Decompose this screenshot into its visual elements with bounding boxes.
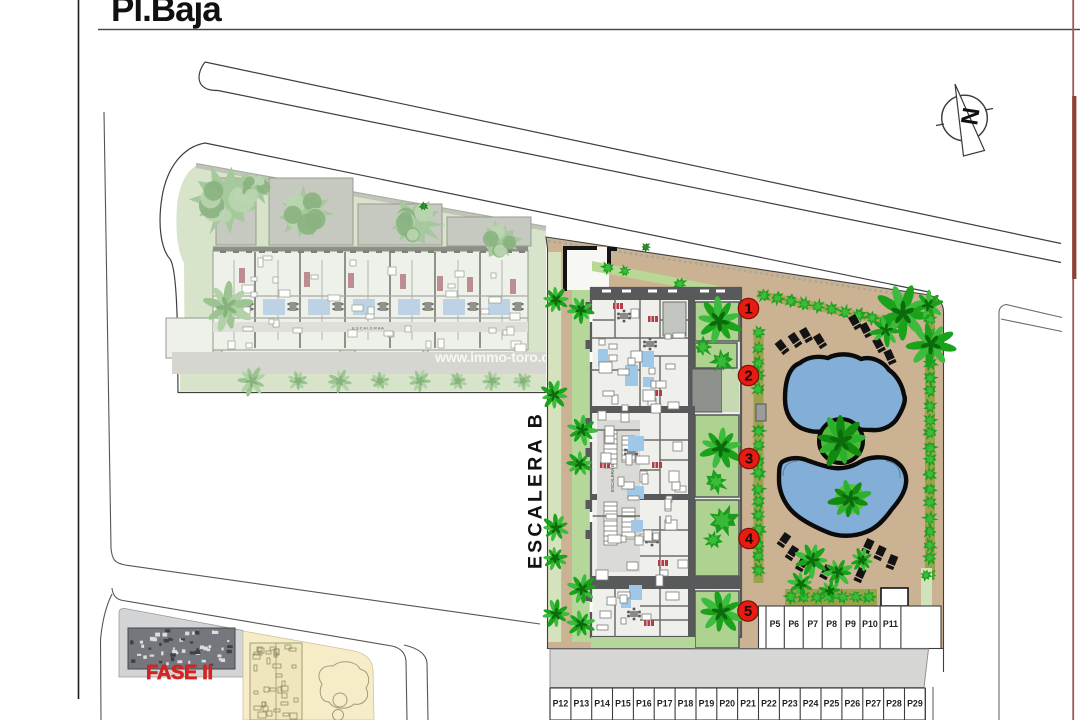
svg-text:P11: P11 [883, 619, 898, 629]
svg-text:4: 4 [745, 531, 754, 548]
svg-text:P20: P20 [719, 699, 735, 709]
svg-text:2: 2 [744, 368, 752, 385]
svg-text:P14: P14 [594, 699, 610, 709]
svg-text:P6: P6 [788, 619, 799, 629]
svg-text:P29: P29 [907, 699, 923, 709]
svg-text:P10: P10 [862, 619, 878, 629]
svg-text:P16: P16 [636, 699, 652, 709]
svg-text:P22: P22 [761, 699, 777, 709]
svg-text:FASE II: FASE II [146, 662, 213, 684]
svg-text:P8: P8 [826, 619, 837, 629]
svg-text:P7: P7 [807, 619, 818, 629]
svg-text:P25: P25 [824, 699, 840, 709]
svg-text:5: 5 [744, 603, 752, 620]
svg-text:ESCALERA B: ESCALERA B [610, 464, 615, 492]
svg-text:P24: P24 [803, 699, 819, 709]
svg-text:P21: P21 [740, 699, 756, 709]
svg-text:P27: P27 [865, 699, 881, 709]
svg-text:ESCALERA B: ESCALERA B [525, 411, 547, 569]
svg-text:P9: P9 [845, 619, 856, 629]
svg-text:P19: P19 [699, 699, 715, 709]
svg-text:P23: P23 [782, 699, 798, 709]
svg-text:1: 1 [744, 301, 752, 318]
svg-text:3: 3 [745, 451, 753, 468]
svg-text:P12: P12 [553, 699, 569, 709]
svg-text:P17: P17 [657, 699, 673, 709]
svg-text:Pl.Baja: Pl.Baja [111, 0, 222, 29]
svg-text:P26: P26 [844, 699, 860, 709]
svg-text:P13: P13 [573, 699, 589, 709]
svg-text:P28: P28 [886, 699, 902, 709]
svg-text:P15: P15 [615, 699, 631, 709]
svg-text:P5: P5 [770, 619, 781, 629]
svg-text:P18: P18 [678, 699, 694, 709]
